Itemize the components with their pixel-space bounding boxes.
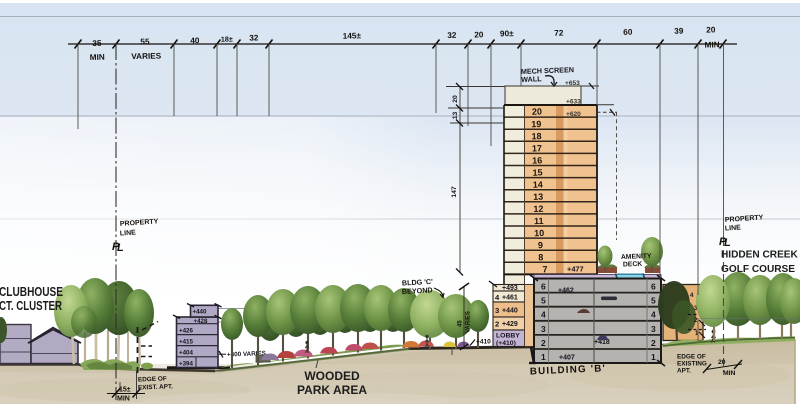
svg-text:+462: +462 — [558, 288, 574, 295]
svg-text:CLUBHOUSE: CLUBHOUSE — [0, 285, 63, 299]
svg-text:5: 5 — [541, 296, 546, 306]
svg-text:20: 20 — [532, 107, 542, 117]
svg-text:10: 10 — [534, 228, 544, 238]
svg-text:8: 8 — [538, 252, 543, 262]
svg-text:+653: +653 — [565, 80, 580, 87]
svg-text:+477: +477 — [567, 265, 584, 274]
svg-text:18±: 18± — [221, 34, 233, 43]
svg-text:3: 3 — [651, 324, 656, 334]
svg-text:+394: +394 — [179, 361, 193, 368]
svg-text:EXISTING: EXISTING — [677, 361, 707, 368]
svg-text:20: 20 — [706, 25, 716, 34]
svg-text:L: L — [724, 237, 731, 249]
svg-text:+404: +404 — [179, 350, 193, 357]
svg-text:2: 2 — [651, 338, 656, 348]
svg-text:+418: +418 — [594, 339, 610, 346]
svg-text:+440: +440 — [502, 308, 518, 315]
svg-text:2: 2 — [495, 320, 499, 329]
svg-text:MIN: MIN — [704, 40, 719, 49]
svg-text:1: 1 — [651, 352, 656, 362]
svg-text:72: 72 — [554, 29, 564, 38]
svg-text:WOODED: WOODED — [304, 369, 360, 383]
svg-text:145±: 145± — [343, 31, 362, 40]
svg-text:19: 19 — [531, 119, 541, 129]
svg-text:3: 3 — [541, 324, 546, 334]
svg-text:+415: +415 — [179, 339, 193, 346]
svg-text:12: 12 — [533, 204, 543, 214]
svg-text:4: 4 — [651, 310, 656, 320]
svg-text:39: 39 — [674, 27, 684, 36]
svg-text:5: 5 — [651, 296, 656, 306]
svg-text:PARK AREA: PARK AREA — [297, 383, 367, 397]
svg-text:+620: +620 — [566, 111, 581, 118]
svg-text:GOLF COURSE: GOLF COURSE — [721, 264, 795, 275]
svg-text:147: 147 — [451, 186, 458, 198]
svg-text:APT.: APT. — [677, 368, 691, 375]
svg-text:VARIES: VARIES — [466, 311, 472, 333]
svg-text:MIN: MIN — [117, 396, 130, 403]
svg-text:15±: 15± — [119, 387, 131, 394]
svg-text:32: 32 — [249, 33, 259, 42]
svg-text:+407: +407 — [559, 355, 575, 362]
svg-text:BEYOND: BEYOND — [402, 285, 433, 296]
svg-text:9: 9 — [538, 240, 543, 250]
svg-text:14: 14 — [533, 180, 543, 190]
svg-text:MIN: MIN — [723, 370, 736, 377]
svg-text:15: 15 — [532, 167, 542, 177]
svg-text:+461: +461 — [502, 295, 518, 302]
svg-text:11: 11 — [534, 216, 544, 226]
svg-text:EXIST. APT.: EXIST. APT. — [138, 383, 173, 391]
svg-text:LINE: LINE — [120, 229, 137, 237]
svg-text:+410: +410 — [476, 339, 491, 346]
svg-text:13: 13 — [533, 192, 543, 202]
svg-text:VARIES: VARIES — [131, 51, 162, 61]
svg-text:20: 20 — [718, 359, 726, 366]
svg-text:17: 17 — [532, 143, 542, 153]
svg-text:+426: +426 — [179, 328, 193, 335]
svg-text:+428: +428 — [194, 318, 208, 325]
svg-text:2: 2 — [541, 338, 546, 348]
svg-text:4: 4 — [541, 310, 546, 320]
svg-text:3: 3 — [495, 306, 499, 315]
svg-text:EDGE OF: EDGE OF — [138, 375, 167, 383]
svg-text:EDGE OF: EDGE OF — [677, 354, 706, 361]
svg-text:+429: +429 — [502, 321, 518, 328]
svg-text:45: 45 — [458, 320, 464, 327]
svg-text:6: 6 — [541, 282, 546, 292]
svg-text:13: 13 — [452, 112, 459, 120]
svg-text:WALL: WALL — [521, 74, 542, 84]
svg-text:60: 60 — [623, 28, 633, 37]
svg-text:HIDDEN CREEK: HIDDEN CREEK — [721, 250, 799, 261]
svg-text:6: 6 — [651, 282, 656, 292]
svg-text:DECK: DECK — [623, 261, 643, 269]
svg-text:AMENITY: AMENITY — [621, 253, 652, 261]
svg-text:L: L — [117, 242, 124, 254]
svg-text:+440: +440 — [193, 309, 207, 316]
svg-text:18: 18 — [531, 131, 541, 141]
svg-text:90±: 90± — [500, 29, 514, 38]
svg-text:(+410): (+410) — [496, 340, 516, 347]
svg-text:32: 32 — [447, 31, 457, 40]
svg-text:CT. CLUSTER: CT. CLUSTER — [0, 299, 62, 313]
svg-text:1: 1 — [541, 352, 546, 362]
svg-text:20: 20 — [452, 95, 459, 103]
svg-text:7: 7 — [542, 264, 547, 274]
svg-text:35: 35 — [92, 39, 102, 48]
svg-text:55: 55 — [140, 37, 150, 46]
svg-text:LINE: LINE — [725, 224, 742, 232]
svg-text:20: 20 — [474, 30, 484, 39]
svg-text:+493: +493 — [502, 285, 518, 292]
svg-text:16: 16 — [532, 155, 542, 165]
svg-text:LOBBY: LOBBY — [496, 333, 520, 340]
svg-text:40: 40 — [190, 36, 200, 45]
svg-text:+633: +633 — [566, 99, 581, 106]
svg-text:MIN: MIN — [90, 53, 105, 62]
